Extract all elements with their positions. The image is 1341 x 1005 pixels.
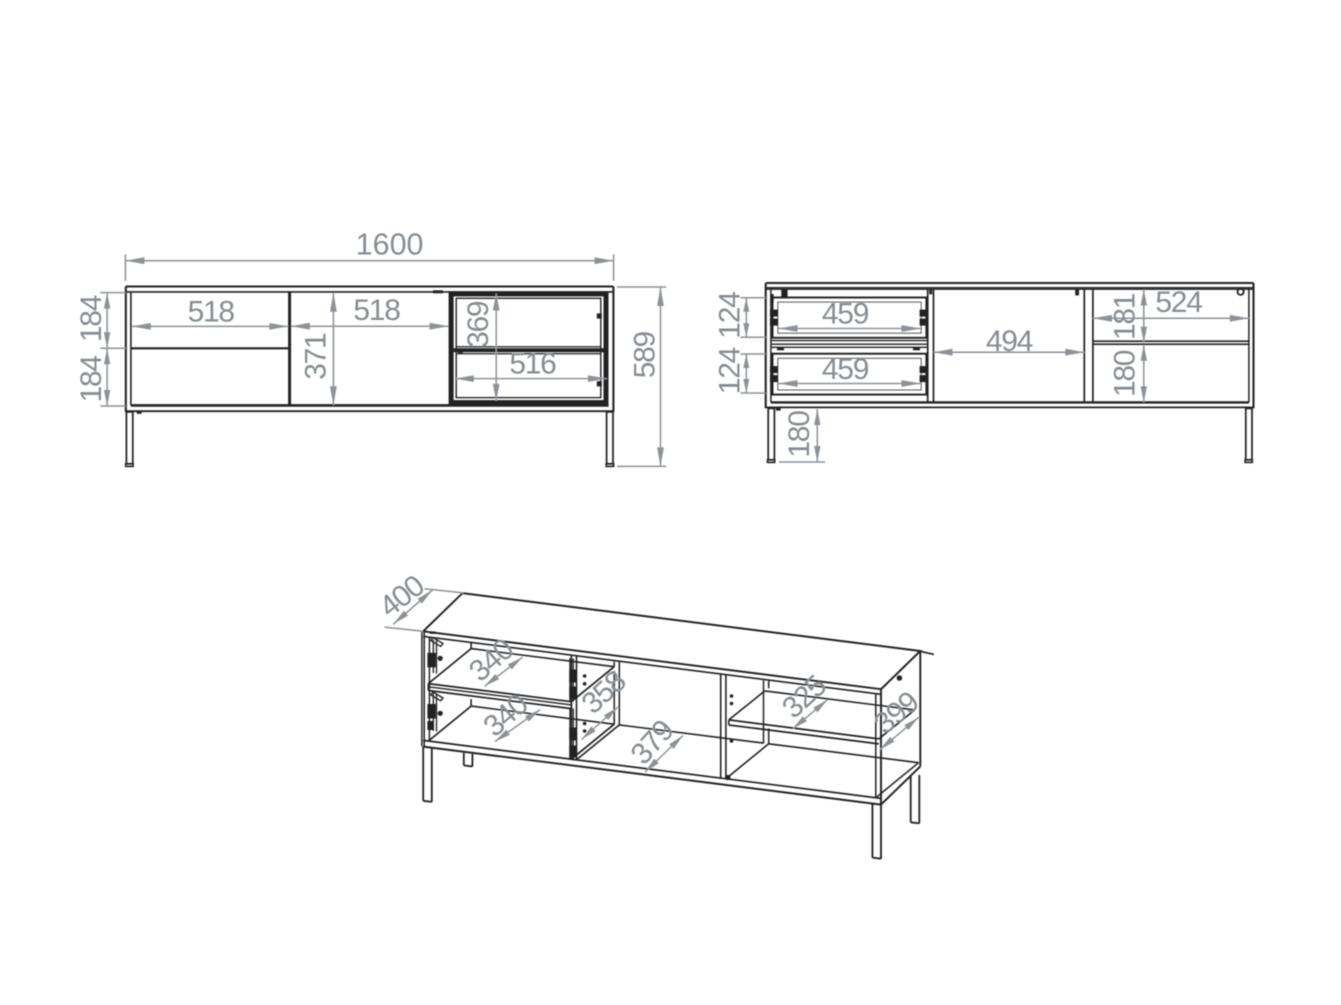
- svg-text:459: 459: [822, 353, 869, 386]
- svg-text:589: 589: [628, 332, 661, 379]
- svg-text:180: 180: [783, 411, 816, 458]
- svg-text:184: 184: [75, 295, 108, 342]
- svg-text:124: 124: [714, 347, 747, 394]
- svg-text:524: 524: [1155, 286, 1202, 319]
- svg-text:124: 124: [714, 292, 747, 339]
- svg-text:181: 181: [1108, 293, 1141, 340]
- svg-text:371: 371: [300, 333, 333, 380]
- svg-text:180: 180: [1108, 350, 1141, 397]
- svg-text:516: 516: [509, 348, 556, 381]
- svg-text:1600: 1600: [356, 228, 424, 262]
- svg-text:494: 494: [986, 325, 1033, 358]
- svg-text:369: 369: [462, 301, 495, 348]
- svg-text:518: 518: [353, 294, 400, 327]
- svg-text:459: 459: [822, 298, 869, 331]
- svg-text:184: 184: [75, 356, 108, 403]
- svg-text:518: 518: [188, 296, 235, 329]
